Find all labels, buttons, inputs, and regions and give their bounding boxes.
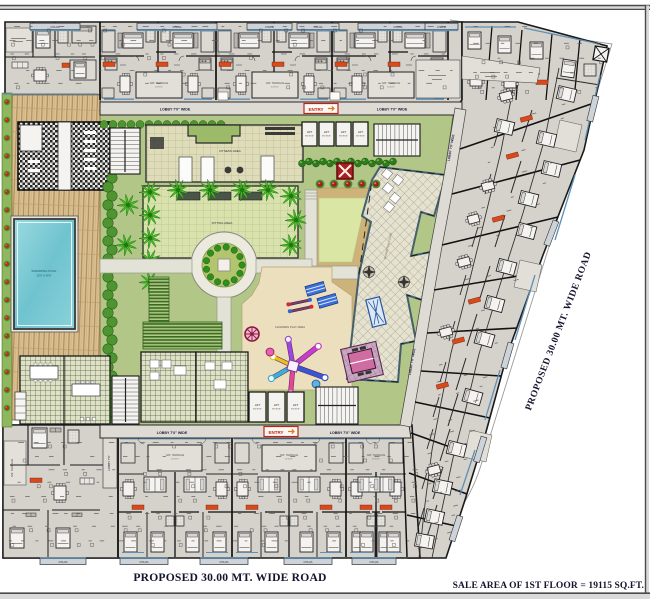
svg-text:8'0"X5'6": 8'0"X5'6"	[305, 136, 314, 138]
svg-text:8'0"X5'6": 8'0"X5'6"	[356, 136, 365, 138]
svg-text:ENTRY: ENTRY	[308, 107, 323, 112]
svg-text:LIFT: LIFT	[274, 403, 280, 407]
svg-text:SWIMMING POOL: SWIMMING POOL	[31, 269, 56, 273]
svg-text:CHAJJA: CHAJJA	[50, 26, 59, 29]
svg-text:LOBBY 7'0" WIDE: LOBBY 7'0" WIDE	[157, 431, 188, 435]
svg-text:LOBBY 7'0" WIDE: LOBBY 7'0" WIDE	[330, 431, 361, 435]
svg-text:20'0" X 40'0": 20'0" X 40'0"	[37, 274, 52, 278]
svg-text:LIFT: LIFT	[341, 130, 347, 134]
svg-text:NAT. TERRACE: NAT. TERRACE	[166, 453, 185, 457]
svg-text:30'X8'0": 30'X8'0"	[387, 87, 395, 89]
svg-text:LIFT: LIFT	[324, 130, 330, 134]
svg-text:PROPOSED 30.00 MT. WIDE ROAD: PROPOSED 30.00 MT. WIDE ROAD	[133, 571, 326, 584]
svg-text:LIFT: LIFT	[293, 403, 299, 407]
svg-text:ENTRY: ENTRY	[268, 430, 283, 435]
svg-text:30'X8'0": 30'X8'0"	[171, 459, 179, 461]
svg-text:LOBBY 7'0" WIDE: LOBBY 7'0" WIDE	[160, 108, 191, 112]
svg-text:CHILDREN PLAY AREA: CHILDREN PLAY AREA	[275, 325, 305, 329]
svg-text:NAT. TERRACE: NAT. TERRACE	[266, 81, 285, 85]
svg-text:8'0"X5'6": 8'0"X5'6"	[272, 409, 281, 411]
svg-text:CHAJJA: CHAJJA	[219, 561, 228, 564]
svg-text:FITNESS AREA: FITNESS AREA	[219, 149, 241, 153]
svg-text:8'0"X5'6": 8'0"X5'6"	[253, 409, 262, 411]
svg-text:CHAJJA: CHAJJA	[303, 561, 312, 564]
svg-text:CHAJJA: CHAJJA	[139, 561, 148, 564]
svg-text:30'X8'0": 30'X8'0"	[285, 459, 293, 461]
svg-text:NAT. TERRACE: NAT. TERRACE	[10, 458, 14, 477]
svg-text:30'X8'0": 30'X8'0"	[372, 459, 380, 461]
svg-text:8'0"X5'6": 8'0"X5'6"	[339, 136, 348, 138]
svg-text:30'X8'0": 30'X8'0"	[271, 87, 279, 89]
svg-text:CHAJJA: CHAJJA	[369, 561, 378, 564]
svg-text:CHAJJA: CHAJJA	[58, 561, 67, 564]
svg-text:8'0"X5'6": 8'0"X5'6"	[322, 136, 331, 138]
svg-text:8'0"X5'6": 8'0"X5'6"	[291, 409, 300, 411]
svg-text:LOBBY 7'0" WIDE: LOBBY 7'0" WIDE	[377, 108, 408, 112]
svg-text:SALE AREA OF 1ST FLOOR = 19115: SALE AREA OF 1ST FLOOR = 19115 SQ.FT.	[453, 581, 644, 591]
svg-text:30'X8'0": 30'X8'0"	[155, 87, 163, 89]
svg-text:LIFT: LIFT	[307, 130, 313, 134]
svg-text:NAT. TERRACE: NAT. TERRACE	[280, 453, 299, 457]
svg-text:LOBBY 7'0": LOBBY 7'0"	[107, 455, 111, 471]
svg-text:LIFT: LIFT	[255, 403, 261, 407]
svg-text:SITTING AREA: SITTING AREA	[212, 221, 233, 225]
svg-text:LIFT: LIFT	[358, 130, 364, 134]
